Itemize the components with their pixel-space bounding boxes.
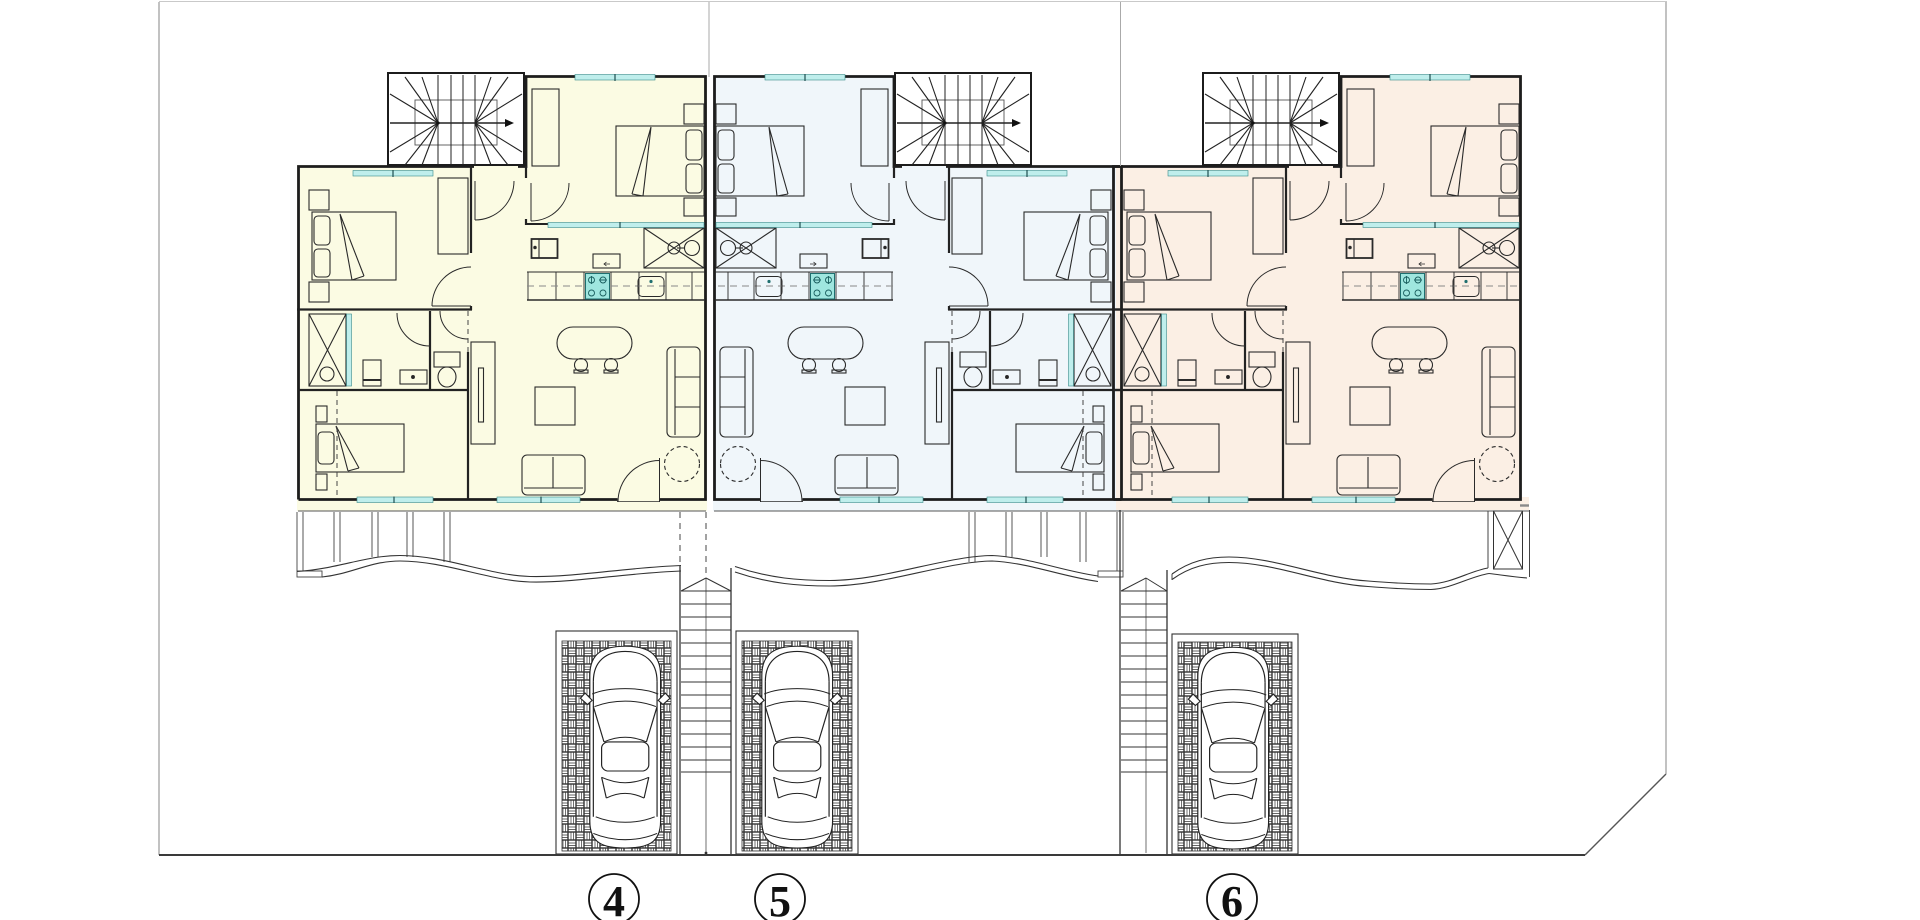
svg-text:5: 5	[769, 877, 791, 920]
svg-text:6: 6	[1221, 877, 1243, 920]
svg-text:4: 4	[603, 877, 625, 920]
